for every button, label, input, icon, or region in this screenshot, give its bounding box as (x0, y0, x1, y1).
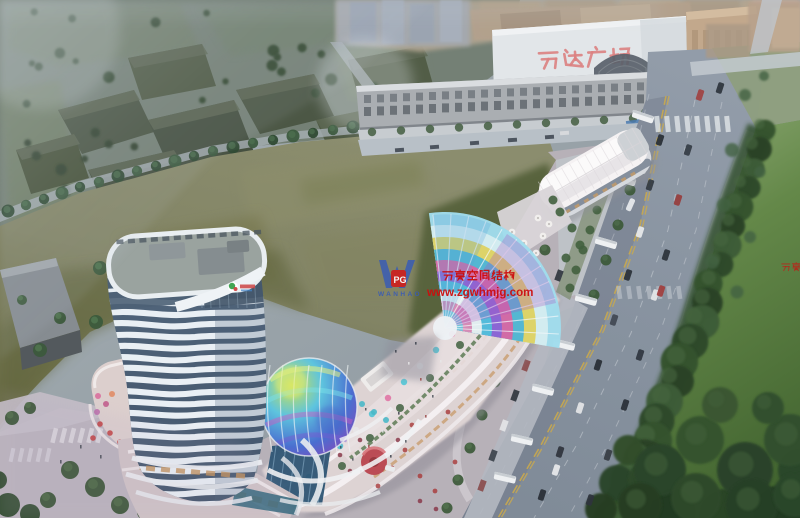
svg-text:WANHAO: WANHAO (378, 291, 422, 298)
svg-text:www.zgwhmjg.com: www.zgwhmjg.com (426, 286, 534, 299)
svg-text:PG: PG (394, 275, 407, 285)
